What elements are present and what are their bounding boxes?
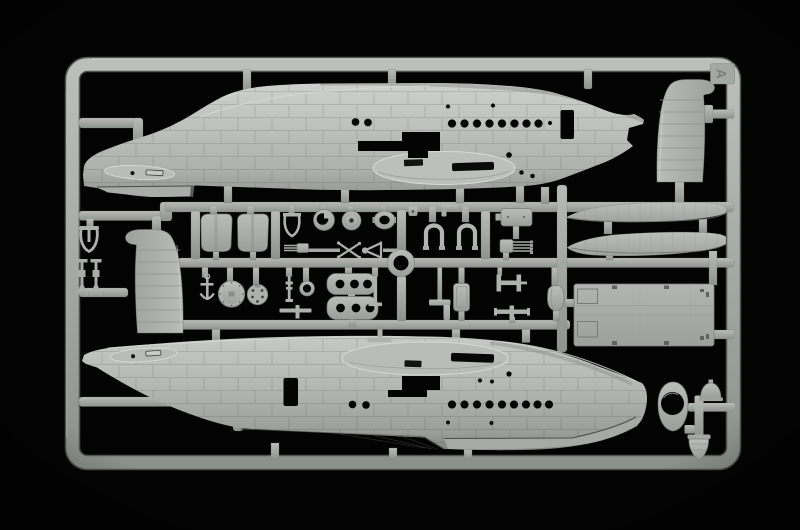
part-curved-fairing [548, 285, 565, 310]
part-seat [454, 284, 470, 312]
part-deck-panel [574, 284, 714, 346]
part-bulkhead-disc [218, 281, 244, 307]
sprue-illustration: A [0, 0, 800, 530]
part-disc [342, 211, 361, 230]
gate-letter: A [714, 69, 729, 79]
part-instrument-disc [247, 284, 267, 304]
gate-letter-tab: A [711, 64, 735, 85]
part-perforated-plates [327, 274, 378, 320]
part-notched-ring [314, 210, 335, 231]
mooring-ring [388, 250, 415, 277]
sprue-photo: A [0, 0, 800, 530]
part-small-ring [300, 281, 315, 296]
